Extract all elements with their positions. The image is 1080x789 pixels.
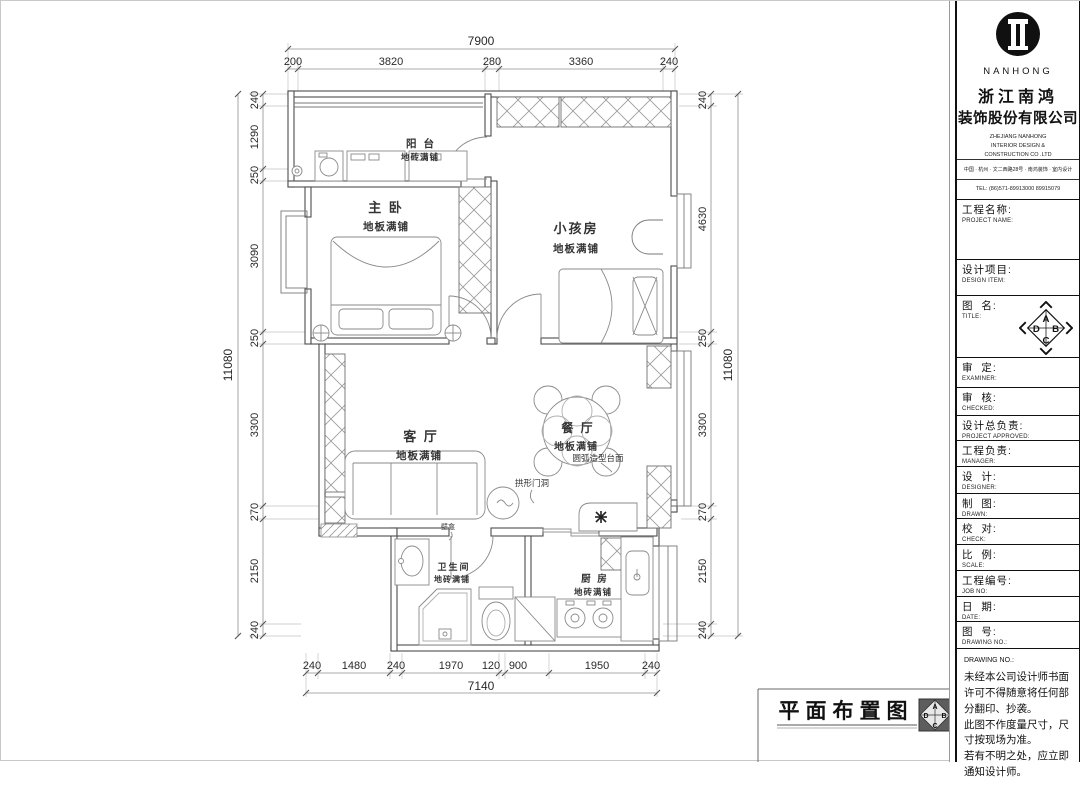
furniture-bathroom (395, 539, 513, 645)
furniture-master-bed (313, 237, 461, 341)
field-drawing-no: 图 号: DRAWING NO.: (957, 621, 1079, 648)
dim-right-seg: 240 (697, 621, 709, 639)
field-examiner-cn: 审 定: (962, 360, 1074, 375)
dim-left-seg: 3090 (249, 244, 261, 268)
compass-letter-d: D (1033, 324, 1040, 335)
compass-letter-a: A (932, 704, 937, 711)
title-block: NANHONG 浙江南鸿 装饰股份有限公司 ZHEJIANG NANHONG I… (949, 1, 1080, 762)
field-examiner: 审 定: EXAMINER: (957, 357, 1079, 387)
dim-right-seg: 250 (697, 329, 709, 347)
floor-plan-drawing: 7900 200 3820 280 3360 240 11080 240 129… (1, 1, 949, 762)
field-job-no-en: JOB NO: (962, 589, 1074, 595)
north-compass-icon: A B C D (919, 699, 949, 731)
room-finish-kids: 地板满铺 (553, 242, 599, 255)
dim-bottom-seg: 240 (303, 660, 321, 672)
field-design-item-cn: 设计项目: (962, 262, 1074, 277)
orientation-compass-icon: A B C D (1019, 301, 1073, 355)
note-line: 寸按现场为准。 (964, 733, 1072, 749)
dimensions-left: 11080 240 1290 250 3090 250 3300 270 215… (221, 91, 261, 639)
brand-name-en: NANHONG (957, 66, 1079, 77)
note-line: 未经本公司设计师书面 (964, 670, 1072, 686)
field-drawing-no-cn: 图 号: (962, 624, 1074, 639)
dim-left-seg: 270 (249, 503, 261, 521)
dim-top-seg: 200 (284, 56, 302, 68)
dim-right-seg: 240 (697, 91, 709, 109)
brand-name-cn-1: 浙江南鸿 (957, 83, 1079, 107)
dim-left-seg: 3300 (249, 413, 261, 437)
field-project-name-en: PROJECT NAME: (962, 218, 1074, 224)
field-drawn-cn: 制 图: (962, 496, 1074, 511)
field-project-name-cn: 工程名称: (962, 202, 1074, 217)
room-label-dining: 餐 厅 (561, 420, 594, 435)
furniture-curved-counter (579, 503, 637, 531)
dim-bottom-total: 7140 (468, 679, 495, 693)
dim-bottom-seg: 240 (387, 660, 405, 672)
dim-left-seg: 2150 (249, 559, 261, 583)
field-date: 日 期: DATE: (957, 596, 1079, 621)
field-job-no-cn: 工程编号: (962, 573, 1074, 588)
field-title: 图 名: TITLE: A B C D (957, 295, 1079, 357)
field-design-item: 设计项目: DESIGN ITEM: (957, 259, 1079, 295)
dim-right-seg: 270 (697, 503, 709, 521)
dim-right-total: 11080 (721, 348, 735, 381)
dimensions-right: 240 4630 250 3300 270 2150 240 11080 (697, 91, 735, 639)
compass-letter-c: C (932, 723, 937, 730)
field-design-item-en: DESIGN ITEM: (962, 278, 1074, 284)
room-finish-master: 地板满铺 (363, 220, 409, 233)
copyright-note: DRAWING NO.: 未经本公司设计师书面 许可不得随意将任何部 分翻印、抄… (957, 648, 1079, 788)
dim-right-seg: 3300 (697, 413, 709, 437)
note-line: 通知设计师。 (964, 765, 1072, 781)
dim-left-seg: 240 (249, 621, 261, 639)
compass-letter-d: D (923, 713, 928, 720)
field-scale: 比 例: SCALE: (957, 544, 1079, 570)
field-checked: 审 核: CHECKED: (957, 387, 1079, 415)
brand-en-full-3: CONSTRUCTION CO .LTD (957, 151, 1079, 160)
room-finish-kitchen: 地砖满铺 (574, 587, 612, 597)
field-manager: 工程负责: MANAGER: (957, 440, 1079, 466)
field-designer: 设 计: DESIGNER: (957, 466, 1079, 493)
note-line: 此图不作度量尺寸，尺 (964, 718, 1072, 734)
drawing-title: 平面布置图 (779, 699, 914, 723)
field-manager-cn: 工程负责: (962, 443, 1074, 458)
plant-symbol (595, 511, 607, 523)
field-project-name: 工程名称: PROJECT NAME: (957, 199, 1079, 259)
field-check-en: CHECK: (962, 537, 1074, 543)
dim-top-seg: 240 (660, 56, 678, 68)
field-examiner-en: EXAMINER: (962, 376, 1074, 382)
footer-title-block: 平面布置图 A B C D (758, 689, 949, 762)
room-label-master: 主 卧 (368, 200, 404, 215)
dim-left-seg: 1290 (249, 125, 261, 149)
field-checked-cn: 审 核: (962, 390, 1074, 405)
dim-top-seg: 280 (483, 56, 501, 68)
brand-name-cn-2: 装饰股份有限公司 (957, 107, 1079, 128)
field-designer-cn: 设 计: (962, 469, 1074, 484)
furniture-balcony (292, 151, 467, 181)
field-drawn: 制 图: DRAWN: (957, 493, 1079, 518)
dim-right-seg: 2150 (697, 559, 709, 583)
room-label-living: 客 厅 (403, 429, 439, 444)
field-scale-en: SCALE: (962, 563, 1074, 569)
dim-left-seg: 240 (249, 91, 261, 109)
company-tel: TEL: (86)571-89913000 89915079 (957, 179, 1079, 199)
annotation-niche: 壁龛 (441, 522, 455, 531)
brand-en-full-1: ZHEJIANG NANHONG (957, 133, 1079, 142)
field-manager-en: MANAGER: (962, 459, 1074, 465)
company-address: 中国 · 杭州 · 文二西路28号 · 南鸿装饰 · 室内设计 (957, 159, 1079, 179)
dim-bottom-seg: 240 (642, 660, 660, 672)
field-drawing-no-en: DRAWING NO.: (962, 640, 1074, 646)
dimensions-top: 7900 200 3820 280 3360 240 (284, 34, 678, 68)
furniture-kids-bed (559, 269, 663, 343)
field-date-cn: 日 期: (962, 599, 1074, 614)
compass-letter-a: A (1043, 315, 1050, 326)
dim-top-seg: 3820 (379, 56, 403, 68)
field-checked-en: CHECKED: (962, 406, 1074, 412)
field-project-approved: 设计总负责: PROJECT APPROVED: (957, 415, 1079, 440)
brand-en-full-2: INTERIOR DESIGN & (957, 142, 1079, 151)
note-line: 分翻印、抄袭。 (964, 702, 1072, 718)
drawing-sheet: 7900 200 3820 280 3360 240 11080 240 129… (0, 0, 1080, 761)
compass-letter-b: B (941, 713, 946, 720)
dim-right-seg: 4630 (697, 207, 709, 231)
dim-bottom-seg: 1970 (439, 660, 463, 672)
room-label-bath: 卫生间 (437, 561, 470, 572)
compass-letter-c: C (1043, 336, 1050, 347)
dim-top-total: 7900 (468, 34, 495, 48)
room-label-balcony: 阳 台 (406, 137, 436, 150)
note-line: 若有不明之处，应立即 (964, 749, 1072, 765)
room-finish-balcony: 地砖满铺 (401, 152, 439, 162)
note-line: 许可不得随意将任何部 (964, 686, 1072, 702)
field-job-no: 工程编号: JOB NO: (957, 570, 1079, 596)
annotation-curved-counter: 圆弧造型台面 (572, 453, 624, 463)
nanhong-logo-icon (995, 11, 1041, 57)
field-scale-cn: 比 例: (962, 547, 1074, 562)
room-finish-bath: 地砖满铺 (434, 574, 470, 584)
field-project-approved-cn: 设计总负责: (962, 418, 1074, 433)
room-finish-dining: 地板满铺 (554, 440, 598, 453)
compass-letter-b: B (1052, 324, 1059, 335)
field-check: 校 对: CHECK: (957, 518, 1079, 544)
dim-bottom-seg: 1480 (342, 660, 366, 672)
dim-top-seg: 3360 (569, 56, 593, 68)
dim-left-seg: 250 (249, 166, 261, 184)
annotation-arch-door: 拱形门洞 (515, 478, 549, 488)
room-label-kids: 小孩房 (553, 221, 598, 236)
dim-bottom-seg: 120 (482, 660, 500, 672)
room-finish-living: 地板满铺 (396, 449, 442, 462)
dim-left-total: 11080 (221, 348, 235, 381)
field-designer-en: DESIGNER: (962, 485, 1074, 491)
field-check-cn: 校 对: (962, 521, 1074, 536)
dim-bottom-seg: 900 (509, 660, 527, 672)
dim-bottom-seg: 1950 (585, 660, 609, 672)
dimensions-bottom: 240 1480 240 1970 120 900 1950 240 7140 (303, 660, 660, 693)
note-title: DRAWING NO.: (964, 657, 1072, 664)
dim-left-seg: 250 (249, 329, 261, 347)
entry-threshold (321, 524, 357, 537)
room-label-kitchen: 厨 房 (581, 573, 609, 585)
company-brand: NANHONG 浙江南鸿 装饰股份有限公司 ZHEJIANG NANHONG I… (957, 1, 1079, 159)
